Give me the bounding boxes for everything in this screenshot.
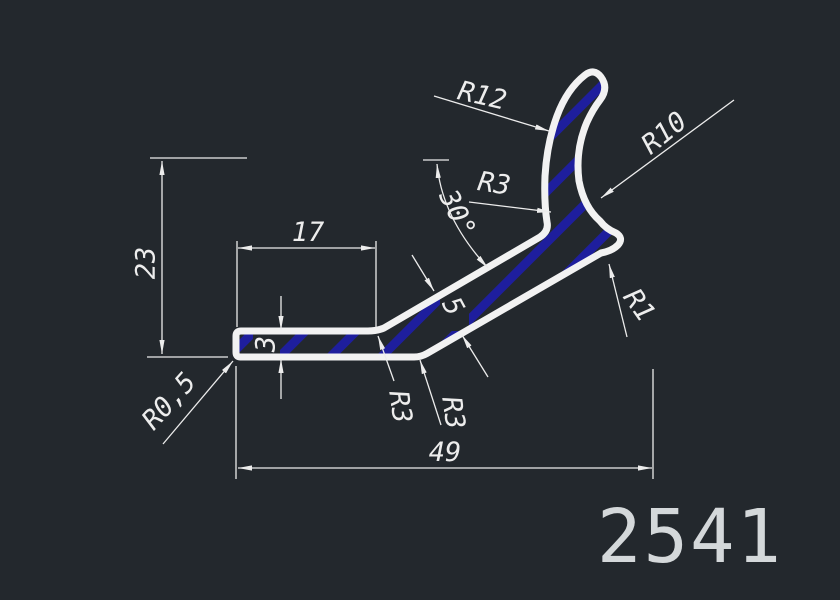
dim-17-text[interactable]: 17 [292, 217, 325, 248]
leader-r3-lower-right-text[interactable]: R3 [435, 395, 470, 432]
leader-r3-upper-text[interactable]: R3 [476, 166, 513, 202]
dim-3-text[interactable]: 3 [251, 336, 282, 353]
part-number[interactable]: 2541 [597, 494, 783, 580]
cad-canvas: 23 17 3 49 30° 5 R12 R10 [0, 0, 840, 600]
drawing-svg: 23 17 3 49 30° 5 R12 R10 [0, 0, 840, 600]
dim-23-text[interactable]: 23 [131, 247, 162, 280]
leader-r3-lower-left-text[interactable]: R3 [382, 389, 417, 426]
dim-49-text[interactable]: 49 [429, 437, 462, 468]
